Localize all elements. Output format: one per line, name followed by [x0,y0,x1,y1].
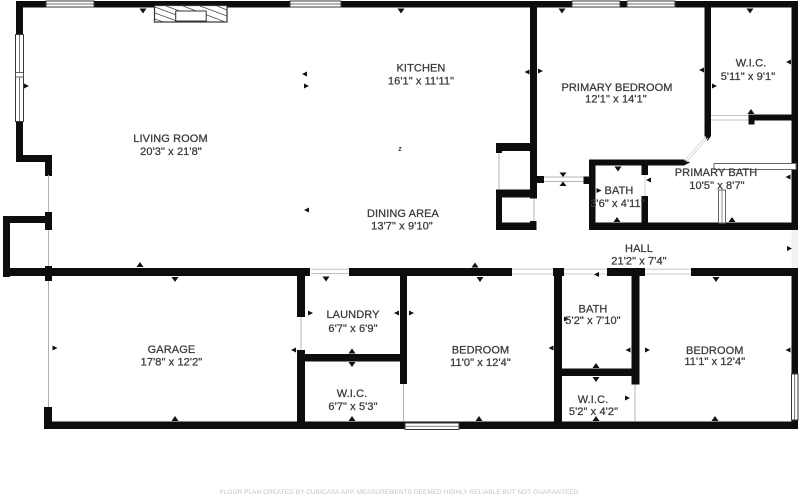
svg-text:6'7" x 5'3": 6'7" x 5'3" [328,401,377,413]
svg-text:6'7" x 6'9": 6'7" x 6'9" [328,323,377,335]
svg-text:PRIMARY BEDROOM: PRIMARY BEDROOM [561,82,672,94]
svg-text:z: z [398,146,402,153]
svg-text:13'7" x 9'10": 13'7" x 9'10" [371,221,433,233]
svg-text:DINING AREA: DINING AREA [367,208,440,220]
svg-text:10'5" x 8'7": 10'5" x 8'7" [689,180,744,192]
svg-text:LIVING ROOM: LIVING ROOM [133,133,207,145]
svg-text:11'1" x 12'4": 11'1" x 12'4" [684,356,745,368]
svg-text:FLOOR PLAN CREATED BY CUBICASA: FLOOR PLAN CREATED BY CUBICASA APP. MEAS… [220,489,581,496]
svg-text:17'8" x 12'2": 17'8" x 12'2" [141,357,203,369]
svg-text:HALL: HALL [625,243,653,255]
svg-text:16'1" x 11'11": 16'1" x 11'11" [388,76,454,88]
svg-text:20'3" x 21'8": 20'3" x 21'8" [140,146,202,158]
svg-text:5'11" x 9'1": 5'11" x 9'1" [721,71,776,83]
svg-text:5'2" x 4'2": 5'2" x 4'2" [569,406,618,418]
svg-text:W.I.C.: W.I.C. [736,58,767,70]
svg-text:LAUNDRY: LAUNDRY [326,309,380,321]
svg-text:3'6" x 4'11": 3'6" x 4'11" [590,198,645,210]
svg-text:W.I.C.: W.I.C. [578,394,609,406]
svg-text:BATH: BATH [579,304,608,316]
svg-text:KITCHEN: KITCHEN [397,63,446,75]
svg-text:BEDROOM: BEDROOM [452,345,510,357]
svg-text:BATH: BATH [605,185,634,197]
svg-text:PRIMARY BATH: PRIMARY BATH [675,167,758,179]
svg-text:GARAGE: GARAGE [148,344,196,356]
svg-text:12'1" x 14'1": 12'1" x 14'1" [585,94,647,106]
svg-text:11'0" x 12'4": 11'0" x 12'4" [450,357,511,369]
svg-text:21'2" x 7'4": 21'2" x 7'4" [611,256,666,268]
svg-text:5'2" x 7'10": 5'2" x 7'10" [565,315,620,327]
svg-text:W.I.C.: W.I.C. [337,388,368,400]
